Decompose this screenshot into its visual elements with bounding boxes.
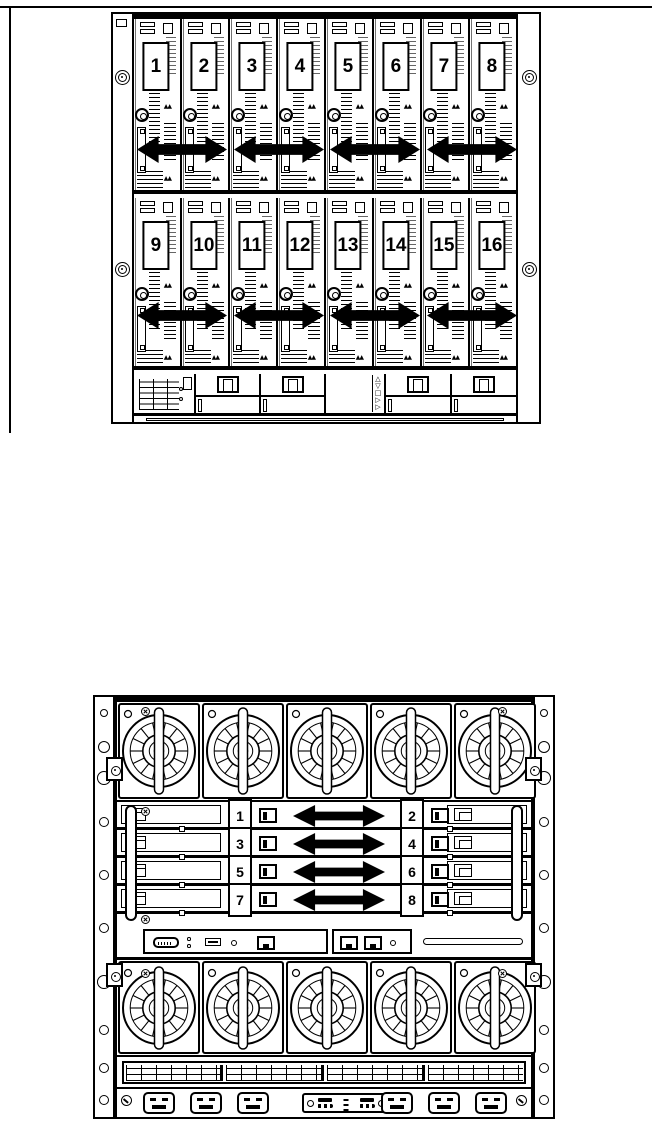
button-icon: [390, 940, 396, 946]
screw-icon: [516, 1095, 527, 1106]
double-arrow-icon: [293, 861, 385, 883]
vent-icon: [188, 208, 203, 213]
rail-tab: [179, 826, 185, 832]
vent-icon: [499, 202, 509, 213]
interconnect-row: 1 2: [117, 802, 531, 830]
vent-icon: [236, 208, 251, 213]
label-bar: [360, 1098, 374, 1102]
status-led-icon: [187, 937, 191, 941]
device-bay-number-label: 8: [478, 42, 505, 91]
ethernet-port-icon: [340, 936, 358, 950]
vent-icon: [259, 202, 269, 213]
status-led-icon: [179, 397, 183, 401]
latch-lock-icon: ▲▲: [164, 103, 171, 110]
vent-icon: [140, 29, 155, 34]
vent-icon: [451, 23, 461, 34]
vent-icon: [428, 201, 443, 206]
latch-lock-icon: ▲▲: [404, 354, 411, 361]
vent-ladder: [185, 350, 211, 366]
mounting-hole-icon: [100, 709, 108, 717]
fan-module: [118, 961, 200, 1054]
device-bay: 5 ▲▲ ▲▲: [326, 19, 374, 190]
enclosure-rear-view: 1 2 3 4 5 6: [93, 695, 555, 1119]
blade-release-latch-icon: [135, 287, 149, 301]
fan-icon: [288, 705, 366, 797]
power-supply-module: [196, 374, 261, 413]
vga-connector-icon: [153, 937, 179, 948]
rail-tab: [179, 910, 185, 916]
latch-lock-icon: ▲▲: [260, 175, 267, 182]
double-arrow-icon: [137, 302, 227, 329]
device-bay-number-label: 2: [190, 42, 217, 91]
double-arrow-icon: [293, 833, 385, 855]
mounting-hole-icon: [538, 741, 550, 753]
vent-icon: [332, 201, 347, 206]
module-divider: [196, 395, 259, 397]
blade-release-latch-icon: [375, 108, 389, 122]
device-bay: 16 ▲▲ ▲▲: [470, 198, 516, 366]
fan-module: [202, 961, 284, 1054]
fan-icon: [372, 964, 450, 1052]
vent-icon: [332, 22, 347, 27]
double-arrow-icon: [137, 136, 227, 163]
management-module-row: [117, 926, 531, 960]
interconnect-row: 5 6: [117, 858, 531, 886]
interconnect-port-icon: [259, 864, 277, 879]
power-receptacles-left: [143, 1092, 269, 1114]
interconnect-pairing-arrow: [293, 805, 385, 827]
document-cell-border-left: [9, 6, 11, 433]
device-bay-area: 1 ▲▲ ▲▲ 2 ▲▲ ▲▲ 3 ▲▲ ▲▲: [134, 14, 516, 422]
device-bay: 2 ▲▲ ▲▲: [182, 19, 230, 190]
device-bay: 4 ▲▲ ▲▲: [278, 19, 326, 190]
receptacle-pin: [494, 1098, 500, 1101]
latch-lock-icon: ▲▲: [260, 103, 267, 110]
power-supply-module: [452, 374, 516, 413]
power-receptacle-icon: [475, 1092, 507, 1114]
latch-lock-icon: ▲▲: [260, 354, 267, 361]
module-handle: [459, 868, 472, 877]
power-receptacle-icon: [143, 1092, 175, 1114]
bay-pairing-arrow: [330, 302, 420, 329]
receptacle-pin: [447, 1098, 453, 1101]
blade-release-latch-icon: [423, 287, 437, 301]
screw-icon: [121, 1095, 132, 1106]
fan-module: [286, 703, 368, 799]
latch-lock-icon: ▲▲: [308, 354, 315, 361]
vent-icon: [140, 201, 155, 206]
module-handle: [459, 812, 472, 821]
vent-icon: [236, 29, 251, 34]
vent-ladder: [473, 171, 499, 189]
device-bay: 12 ▲▲ ▲▲: [278, 198, 326, 366]
psu-handle-grip: [288, 379, 298, 392]
vent-icon: [403, 23, 413, 34]
rack-latch: [525, 963, 542, 987]
mounting-hole-icon: [539, 817, 549, 827]
vent-icon: [476, 201, 491, 206]
latch-lock-icon: ▲▲: [260, 282, 267, 289]
screw-icon: [498, 969, 507, 978]
mounting-hole-icon: [539, 870, 549, 880]
receptacle-pin: [482, 1098, 488, 1101]
port-pin: [435, 812, 439, 820]
vent-icon: [163, 23, 173, 34]
vent-icon: [380, 201, 395, 206]
side-handle: [511, 805, 523, 921]
vent-icon: [332, 208, 347, 213]
blade-release-latch-icon: [375, 287, 389, 301]
vent-icon: [284, 208, 299, 213]
rear-chassis: 1 2 3 4 5 6: [115, 695, 533, 1119]
front-bottom-modules: △ ▽ □ ▷ ▷: [134, 374, 516, 416]
psu-handle-grip: [223, 379, 233, 392]
vent-icon: [428, 29, 443, 34]
double-arrow-icon: [293, 805, 385, 827]
rail-tab: [179, 854, 185, 860]
interconnect-bay-area: 1 2 3 4 5 6: [117, 802, 531, 926]
device-bay: 9 ▲▲ ▲▲: [134, 198, 182, 366]
blade-release-latch-icon: [183, 287, 197, 301]
vent-icon: [428, 22, 443, 27]
port-pin: [435, 868, 439, 876]
blade-release-latch-icon: [279, 108, 293, 122]
latch-lock-icon: ▲▲: [356, 282, 363, 289]
vent-icon: [140, 22, 155, 27]
receptacle-pin: [197, 1098, 203, 1101]
receptacle-pin: [152, 1105, 166, 1109]
screw-icon: [498, 707, 507, 716]
vent-icon: [188, 29, 203, 34]
blade-release-latch-icon: [327, 287, 341, 301]
interconnect-port-icon: [259, 892, 277, 907]
nav-right-icon: ▷ ▷: [375, 397, 380, 411]
bay-pairing-arrow: [234, 302, 324, 329]
device-bay-number-label: 11: [238, 221, 265, 270]
center-indicator-icon: [344, 1097, 349, 1111]
receptacle-pin: [400, 1098, 406, 1101]
vent-icon: [236, 201, 251, 206]
latch-lock-icon: ▲▲: [356, 354, 363, 361]
receptacle-pin: [390, 1105, 404, 1109]
vent-icon: [380, 22, 395, 27]
vent-louver-group: [126, 1065, 224, 1081]
blade-release-latch-icon: [471, 287, 485, 301]
power-input-row: [117, 1087, 531, 1117]
double-arrow-icon: [427, 302, 517, 329]
ethernet-port-icon: [257, 936, 275, 950]
led-cluster-icon: [317, 1104, 333, 1108]
fan-icon: [204, 705, 282, 797]
tray-slot: [423, 938, 523, 945]
device-bay-number-label: 12: [286, 221, 313, 270]
device-bay-number-label: 14: [382, 221, 409, 270]
latch-lock-icon: ▲▲: [404, 175, 411, 182]
module-tab: [183, 377, 192, 390]
blade-release-latch-icon: [135, 108, 149, 122]
fan-module: [118, 703, 200, 799]
latch-lock-icon: ▲▲: [500, 354, 507, 361]
fan-module: [454, 961, 536, 1054]
power-supply-module: [261, 374, 326, 413]
rail-tab: [447, 910, 453, 916]
device-bay-number-label: 9: [142, 221, 169, 270]
mounting-hole-icon: [98, 741, 110, 753]
mounting-hole-icon: [539, 1025, 549, 1035]
vent-louver-group: [327, 1065, 425, 1081]
rail-tab: [447, 826, 453, 832]
vent-icon: [211, 202, 221, 213]
interconnect-bay-number-label: 8: [400, 883, 424, 917]
interconnect-row: 3 4: [117, 830, 531, 858]
receptacle-pin: [388, 1098, 394, 1101]
document-cell-border-top: [0, 6, 652, 8]
rack-latch: [525, 757, 542, 781]
interconnect-pairing-arrow: [293, 889, 385, 911]
double-arrow-icon: [293, 889, 385, 911]
thumbscrew-icon: [115, 262, 130, 277]
device-bay: 14 ▲▲ ▲▲: [374, 198, 422, 366]
vent-ladder: [425, 171, 451, 189]
screw-icon: [307, 1100, 314, 1107]
vent-icon: [307, 23, 317, 34]
link-module: [332, 929, 412, 954]
blade-release-latch-icon: [231, 108, 245, 122]
device-bay-number-label: 16: [478, 221, 505, 270]
port-pin: [263, 840, 267, 848]
latch-lock-icon: ▲▲: [404, 282, 411, 289]
device-bay-number-label: 13: [334, 221, 361, 270]
blade-release-latch-icon: [423, 108, 437, 122]
mounting-hole-icon: [540, 709, 548, 717]
fan-icon: [120, 705, 198, 797]
mounting-hole-icon: [99, 1095, 109, 1105]
vent-icon: [211, 23, 221, 34]
front-right-rack-ear: [516, 14, 539, 422]
device-bay-row-top: 1 ▲▲ ▲▲ 2 ▲▲ ▲▲ 3 ▲▲ ▲▲: [134, 19, 516, 194]
vent-icon: [259, 23, 269, 34]
interconnect-pairing-arrow: [293, 833, 385, 855]
latch-lock-icon: ▲▲: [356, 175, 363, 182]
vent-louver-strip: [122, 1061, 526, 1084]
psu-handle-grip: [413, 379, 423, 392]
bay-pairing-arrow: [137, 136, 227, 163]
fan-row-bottom: [117, 960, 531, 1057]
usb-port-icon: [205, 938, 221, 946]
latch-lock-icon: ▲▲: [212, 282, 219, 289]
device-bay-row-bottom: 9 ▲▲ ▲▲ 10 ▲▲ ▲▲ 11 ▲▲ ▲▲: [134, 198, 516, 370]
power-supply-module: [386, 374, 452, 413]
device-bay: 7 ▲▲ ▲▲: [422, 19, 470, 190]
module-tab: [198, 399, 202, 412]
blade-release-latch-icon: [327, 108, 341, 122]
device-bay-number-label: 3: [238, 42, 265, 91]
module-divider: [386, 395, 450, 397]
thumbscrew-icon: [522, 262, 537, 277]
vent-icon: [284, 29, 299, 34]
power-status-panel: [302, 1093, 390, 1113]
fan-icon: [120, 964, 198, 1052]
vent-icon: [163, 202, 173, 213]
vent-ladder: [281, 350, 307, 366]
double-arrow-icon: [427, 136, 517, 163]
fan-icon: [204, 964, 282, 1052]
vent-icon: [403, 202, 413, 213]
screw-icon: [141, 707, 150, 716]
chassis-base: [146, 418, 504, 421]
device-bay-number-label: 10: [190, 221, 217, 270]
receptacle-pin: [246, 1105, 260, 1109]
vent-ladder: [329, 171, 355, 189]
blade-release-latch-icon: [183, 108, 197, 122]
vent-icon: [284, 201, 299, 206]
device-bay-number-label: 1: [142, 42, 169, 91]
vent-icon: [476, 208, 491, 213]
vent-ladder: [425, 350, 451, 366]
vent-ladder: [281, 171, 307, 189]
vent-icon: [188, 22, 203, 27]
latch-lock-icon: ▲▲: [500, 175, 507, 182]
vent-icon: [428, 208, 443, 213]
vent-icon: [355, 23, 365, 34]
receptacle-pin: [162, 1098, 168, 1101]
interconnect-port-icon: [259, 836, 277, 851]
fan-icon: [456, 705, 534, 797]
double-arrow-icon: [330, 136, 420, 163]
fan-module: [202, 703, 284, 799]
mounting-hole-icon: [99, 870, 109, 880]
module-tab: [454, 399, 458, 412]
label-bar: [318, 1098, 332, 1102]
device-bay: 8 ▲▲ ▲▲: [470, 19, 516, 190]
mounting-hole-icon: [99, 1063, 109, 1073]
rack-latch: [106, 963, 123, 987]
vent-icon: [236, 22, 251, 27]
module-divider: [452, 395, 516, 397]
manual-page: 1 ▲▲ ▲▲ 2 ▲▲ ▲▲ 3 ▲▲ ▲▲: [0, 0, 652, 1126]
vent-ladder: [185, 171, 211, 189]
receptacle-pin: [150, 1098, 156, 1101]
module-divider: [261, 395, 324, 397]
receptacle-pin: [435, 1098, 441, 1101]
receptacle-pin: [256, 1098, 262, 1101]
ethernet-port-icon: [364, 936, 382, 950]
receptacle-pin: [484, 1105, 498, 1109]
vent-icon: [380, 208, 395, 213]
interconnect-port-icon: [259, 808, 277, 823]
vent-icon: [284, 22, 299, 27]
device-bay-number-label: 7: [430, 42, 457, 91]
port-pin: [435, 840, 439, 848]
port-pin: [263, 812, 267, 820]
port-pin: [263, 896, 267, 904]
latch-lock-icon: ▲▲: [164, 175, 171, 182]
mounting-hole-icon: [539, 923, 549, 933]
port-pin: [263, 868, 267, 876]
fan-module: [370, 961, 452, 1054]
reset-button-icon: [231, 940, 237, 946]
mounting-hole-icon: [99, 1025, 109, 1035]
fan-icon: [372, 705, 450, 797]
insight-display: △ ▽ □ ▷ ▷: [326, 374, 386, 413]
power-receptacle-icon: [428, 1092, 460, 1114]
latch-lock-icon: ▲▲: [452, 175, 459, 182]
onboard-administrator-module: [143, 929, 328, 954]
receptacle-pin: [199, 1105, 213, 1109]
side-handle: [125, 805, 137, 921]
vent-icon: [188, 201, 203, 206]
latch-lock-icon: ▲▲: [308, 282, 315, 289]
vent-louver-group: [428, 1065, 523, 1081]
latch-lock-icon: ▲▲: [356, 103, 363, 110]
port-pin: [435, 896, 439, 904]
vent-icon: [476, 29, 491, 34]
latch-lock-icon: ▲▲: [452, 103, 459, 110]
vent-icon: [499, 23, 509, 34]
module-handle: [459, 840, 472, 849]
latch-lock-icon: ▲▲: [500, 103, 507, 110]
bay-pairing-arrow: [330, 136, 420, 163]
latch-lock-icon: ▲▲: [212, 354, 219, 361]
module-handle: [459, 896, 472, 905]
power-receptacles-right: [381, 1092, 507, 1114]
latch-lock-icon: ▲▲: [164, 282, 171, 289]
double-arrow-icon: [330, 302, 420, 329]
interconnect-bay-number-label: 7: [228, 883, 252, 917]
enclosure-front-view: 1 ▲▲ ▲▲ 2 ▲▲ ▲▲ 3 ▲▲ ▲▲: [111, 12, 541, 424]
vent-ladder: [233, 350, 259, 366]
module-tab: [388, 399, 392, 412]
vent-icon: [140, 208, 155, 213]
device-bay: 15 ▲▲ ▲▲: [422, 198, 470, 366]
front-left-rack-ear: [113, 14, 134, 422]
latch-lock-icon: ▲▲: [164, 354, 171, 361]
screw-icon: [141, 915, 150, 924]
latch-lock-icon: ▲▲: [308, 103, 315, 110]
receptacle-pin: [437, 1105, 451, 1109]
nav-up-down-icon: △ ▽: [375, 376, 380, 390]
vent-ladder: [377, 171, 403, 189]
device-bay-number-label: 15: [430, 221, 457, 270]
double-arrow-icon: [234, 136, 324, 163]
fan-module: [454, 703, 536, 799]
device-bay: 3 ▲▲ ▲▲: [230, 19, 278, 190]
blade-release-latch-icon: [471, 108, 485, 122]
latch-lock-icon: ▲▲: [452, 282, 459, 289]
bay-pairing-arrow: [427, 136, 517, 163]
mounting-hole-icon: [539, 1095, 549, 1105]
latch-lock-icon: ▲▲: [452, 354, 459, 361]
bay-pairing-arrow: [137, 302, 227, 329]
fan-icon: [288, 964, 366, 1052]
device-bay: 10 ▲▲ ▲▲: [182, 198, 230, 366]
module-tab: [263, 399, 267, 412]
device-bay: 13 ▲▲ ▲▲: [326, 198, 374, 366]
device-bay-number-label: 5: [334, 42, 361, 91]
power-supply-blank-module: [134, 374, 196, 413]
vent-icon: [380, 29, 395, 34]
device-bay: 6 ▲▲ ▲▲: [374, 19, 422, 190]
vent-ladder: [233, 171, 259, 189]
rail-tab: [179, 882, 185, 888]
power-receptacle-icon: [190, 1092, 222, 1114]
latch-lock-icon: ▲▲: [500, 282, 507, 289]
vent-ladder: [329, 350, 355, 366]
screw-icon: [141, 807, 150, 816]
fan-module: [370, 703, 452, 799]
interconnect-row: 7 8: [117, 886, 531, 914]
fan-row-top: [117, 702, 531, 802]
